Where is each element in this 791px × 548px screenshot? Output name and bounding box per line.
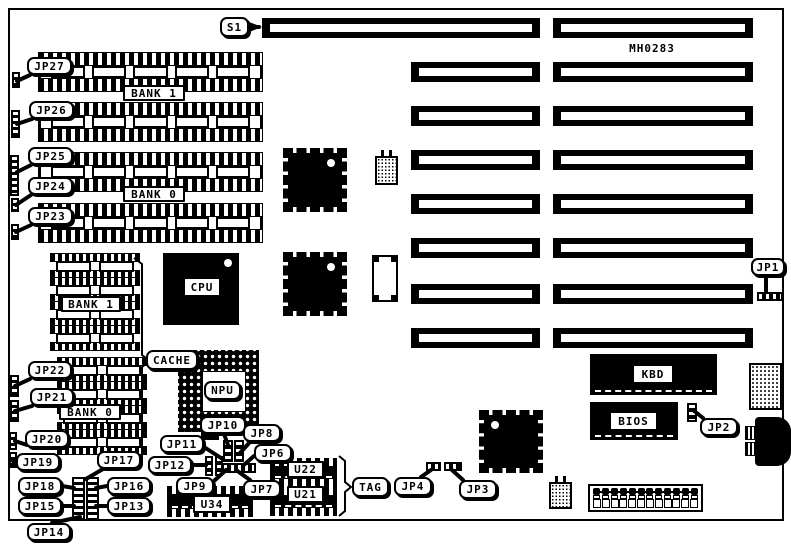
pinblock-b [86, 477, 99, 521]
slot-r4-stripe [561, 156, 745, 164]
bios-chip-pin1-mark [595, 435, 673, 437]
dip-b1-4-chips [50, 334, 140, 342]
label-jp13: JP13 [107, 497, 151, 515]
jumper-c3 [205, 456, 213, 476]
kbd-chip-pin1-mark [595, 390, 712, 392]
dip-b1-1-chips [50, 262, 140, 270]
slot-r2-stripe [561, 68, 745, 76]
simm-3-chips [38, 166, 263, 178]
label-u21: U21 [287, 486, 324, 503]
label-bank1-simm: BANK 1 [123, 85, 185, 101]
slot-l3 [411, 106, 540, 126]
slot-r7 [553, 284, 753, 304]
din-connector [755, 417, 791, 466]
jumper-jp24 [11, 198, 19, 212]
din-plug-2 [745, 442, 757, 456]
crystal-1 [375, 156, 398, 185]
label-jp4: JP4 [394, 477, 432, 496]
dip-b1-2-chips [50, 286, 140, 294]
jumper-jp4 [426, 462, 441, 471]
label-jp10: JP10 [200, 416, 246, 434]
label-jp1: JP1 [751, 258, 785, 276]
label-bank0-simm: BANK 0 [123, 186, 185, 202]
qfp-1 [283, 148, 347, 212]
slot-l2-stripe [419, 68, 532, 76]
slot-r6-stripe [561, 244, 745, 252]
simm-2-pins-bottom [38, 128, 263, 142]
label-jp18: JP18 [18, 477, 62, 495]
label-bank1-dip: BANK 1 [61, 296, 121, 312]
jumper-jp1 [757, 292, 783, 301]
qfp-2-pin1-dot [327, 263, 335, 271]
label-jp7: JP7 [243, 480, 281, 498]
simm-2-chips [38, 116, 263, 128]
empty-socket [372, 255, 398, 302]
label-jp25: JP25 [28, 147, 73, 165]
dip-b0-4-chips [57, 438, 147, 446]
label-npu: NPU [204, 381, 241, 400]
slot-l7 [411, 284, 540, 304]
label-jp27: JP27 [27, 57, 72, 75]
label-bank0-dip: BANK 0 [59, 404, 121, 420]
label-jp3: JP3 [459, 480, 497, 499]
label-u34: U34 [193, 495, 231, 513]
jumper-jp22 [10, 375, 19, 397]
jumper-jp26 [11, 110, 20, 138]
jumper-jp27 [12, 72, 20, 88]
crystal-2 [549, 482, 572, 509]
slot-l3-stripe [419, 112, 532, 120]
jumper-jp20 [9, 432, 17, 450]
label-tag: TAG [352, 477, 389, 497]
motherboard-diagram: S1JP27JP26JP25JP24JP23BANK 1BANK 0BANK 1… [0, 0, 791, 548]
u21-socket-dash [275, 505, 332, 507]
jumper-jp23 [11, 224, 19, 240]
label-jp22: JP22 [28, 361, 72, 379]
slot-r2 [553, 62, 753, 82]
label-u22: U22 [287, 461, 324, 478]
label-s1: S1 [220, 17, 249, 37]
jumper-jp3 [444, 462, 462, 471]
label-part-number: MH0283 [624, 41, 680, 56]
label-jp11: JP11 [160, 435, 204, 453]
slot-r1 [553, 18, 753, 38]
jumper-jp25 [10, 155, 19, 196]
label-jp8: JP8 [243, 424, 281, 442]
jumper-jp2 [687, 403, 697, 422]
slot-l5 [411, 194, 540, 214]
jumper-c5 [222, 463, 256, 473]
slot-l7-stripe [419, 290, 532, 298]
slot-r4 [553, 150, 753, 170]
slot-l4 [411, 150, 540, 170]
label-cpu: CPU [183, 277, 221, 297]
qfp-1-pin1-dot [327, 159, 335, 167]
dip-b0-4 [57, 429, 147, 453]
power-connector [588, 484, 703, 512]
slot-s1-stripe [270, 24, 532, 32]
power-connector-terminals [593, 499, 698, 508]
qfp-2 [283, 252, 347, 316]
label-jp12: JP12 [148, 456, 192, 474]
slot-l2 [411, 62, 540, 82]
simm-4 [38, 203, 263, 241]
label-jp19: JP19 [16, 453, 60, 471]
label-jp14: JP14 [27, 523, 71, 541]
jumper-c2 [234, 440, 244, 462]
qfp-3 [479, 410, 543, 473]
dip-b1-1 [50, 253, 140, 277]
label-cache: CACHE [146, 350, 198, 370]
power-connector-pins [593, 488, 698, 495]
slot-l6 [411, 238, 540, 258]
cpu-chip-pin1-dot [224, 259, 232, 267]
label-jp26: JP26 [29, 101, 74, 119]
slot-l4-stripe [419, 156, 532, 164]
label-jp2: JP2 [700, 418, 738, 436]
slot-r3-stripe [561, 112, 745, 120]
label-jp9: JP9 [176, 477, 214, 495]
slot-l8-stripe [419, 334, 532, 342]
slot-r6 [553, 238, 753, 258]
slot-r3 [553, 106, 753, 126]
label-jp21: JP21 [30, 388, 74, 406]
label-jp6: JP6 [254, 444, 292, 462]
slot-l8 [411, 328, 540, 348]
dotted-chip [749, 363, 782, 410]
label-jp20: JP20 [25, 430, 69, 448]
slot-s1 [262, 18, 540, 38]
label-bios: BIOS [609, 411, 658, 431]
jumper-c1 [223, 440, 233, 462]
slot-r8 [553, 328, 753, 348]
jumper-jp21 [10, 400, 19, 422]
simm-4-pins-bottom [38, 229, 263, 243]
din-plug-1 [745, 426, 757, 440]
slot-r5 [553, 194, 753, 214]
slot-r5-stripe [561, 200, 745, 208]
label-jp15: JP15 [18, 497, 62, 515]
label-jp16: JP16 [107, 477, 151, 495]
pinblock-a [72, 477, 85, 521]
label-jp24: JP24 [28, 177, 73, 195]
label-jp23: JP23 [28, 207, 73, 225]
slot-l6-stripe [419, 244, 532, 252]
dip-b1-4 [50, 325, 140, 349]
slot-r7-stripe [561, 290, 745, 298]
slot-r8-stripe [561, 334, 745, 342]
label-kbd: KBD [632, 364, 674, 384]
slot-l5-stripe [419, 200, 532, 208]
qfp-3-pin1-dot [491, 421, 499, 429]
slot-r1-stripe [561, 24, 745, 32]
label-jp17: JP17 [97, 451, 141, 469]
